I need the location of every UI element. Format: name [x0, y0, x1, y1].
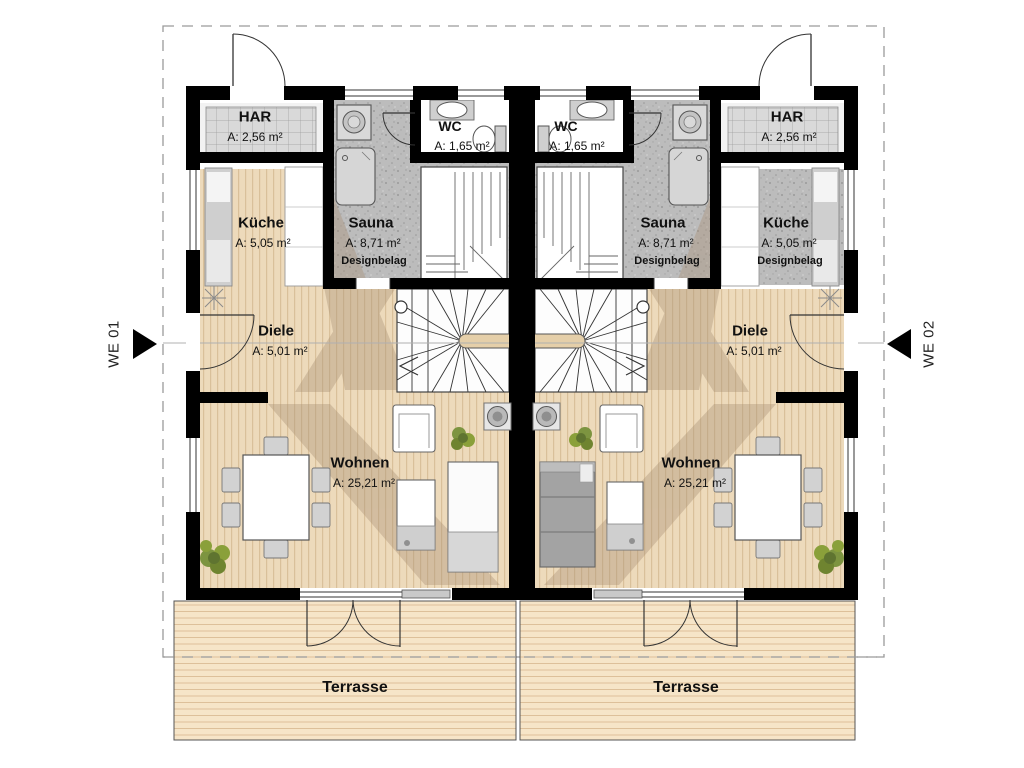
- room-label-kueche-left: Küche: [238, 215, 284, 232]
- room-area-wc-right: A: 1,65 m²: [549, 139, 604, 153]
- sofa-left: [448, 462, 498, 572]
- room-area-sauna-left: A: 8,71 m²: [345, 236, 400, 250]
- tv-board-left: [397, 480, 435, 550]
- shower-icon-right: [669, 148, 708, 205]
- armchair-right: [600, 405, 643, 452]
- washbasin-icon-left: [430, 100, 474, 120]
- room-label-har-left: HAR: [239, 109, 272, 126]
- room-area-diele-right: A: 5,01 m²: [726, 344, 781, 358]
- washer-icon-left: [337, 105, 371, 140]
- washer-icon-right: [673, 105, 707, 140]
- kitchen-star-icon-left: [202, 286, 226, 310]
- terrace-left: [174, 601, 516, 740]
- we01-arrow-icon: [133, 329, 157, 359]
- room-area-wohnen-right: A: 25,21 m²: [664, 476, 726, 490]
- room-note-sauna-right: Designbelag: [634, 255, 699, 267]
- room-area-kueche-right: A: 5,05 m²: [761, 236, 816, 250]
- sauna-room-door-right: [654, 278, 688, 289]
- entrance-door-top-right: [759, 34, 814, 100]
- room-area-har-left: A: 2,56 m²: [227, 130, 282, 144]
- sofa-right: [540, 462, 595, 567]
- unit-marker-we02: WE 02: [921, 320, 938, 368]
- room-label-terrasse-left: Terrasse: [322, 679, 388, 697]
- room-label-sauna-left: Sauna: [348, 215, 393, 232]
- room-area-kueche-left: A: 5,05 m²: [235, 236, 290, 250]
- we02-arrow-icon: [887, 329, 911, 359]
- room-label-kueche-right: Küche: [763, 215, 809, 232]
- stove-icon-right: [533, 403, 560, 430]
- sauna-cabin-left: [421, 167, 507, 283]
- staircase-left: [395, 289, 509, 392]
- room-area-diele-left: A: 5,01 m²: [252, 344, 307, 358]
- room-label-wc-right: WC: [554, 118, 577, 134]
- room-label-wc-left: WC: [438, 118, 461, 134]
- room-note-kueche-right: Designbelag: [757, 255, 822, 267]
- kitchen-star-icon-right: [818, 286, 842, 310]
- tv-board-right: [607, 482, 643, 550]
- stove-icon-left: [484, 403, 511, 430]
- armchair-left: [393, 405, 435, 452]
- room-label-wohnen-right: Wohnen: [662, 455, 721, 472]
- terrace-right: [520, 601, 855, 740]
- room-label-diele-left: Diele: [258, 323, 294, 340]
- room-label-sauna-right: Sauna: [640, 215, 685, 232]
- sauna-room-door-left: [356, 278, 390, 289]
- floor-plan: WE 01 WE 02 HAR A: 2,56 m² HAR A: 2,56 m…: [0, 0, 1024, 768]
- room-label-wohnen-left: Wohnen: [331, 455, 390, 472]
- unit-marker-we01: WE 01: [106, 320, 123, 368]
- shower-icon-left: [336, 148, 375, 205]
- room-label-terrasse-right: Terrasse: [653, 679, 719, 697]
- room-area-wohnen-left: A: 25,21 m²: [333, 476, 395, 490]
- room-label-diele-right: Diele: [732, 323, 768, 340]
- room-note-sauna-left: Designbelag: [341, 255, 406, 267]
- room-area-sauna-right: A: 8,71 m²: [638, 236, 693, 250]
- staircase-right: [535, 289, 649, 392]
- room-label-har-right: HAR: [771, 109, 804, 126]
- washbasin-icon-right: [570, 100, 614, 120]
- room-area-har-right: A: 2,56 m²: [761, 130, 816, 144]
- room-area-wc-left: A: 1,65 m²: [434, 139, 489, 153]
- entrance-door-top-left: [230, 34, 285, 100]
- sauna-cabin-right: [537, 167, 623, 283]
- floor-plan-drawing: [0, 0, 1024, 768]
